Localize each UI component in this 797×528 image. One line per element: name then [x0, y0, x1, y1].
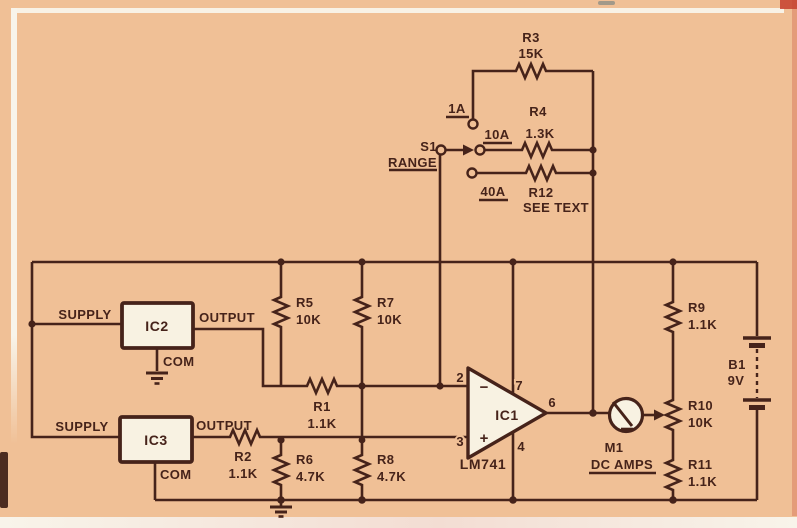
resistor-r4	[518, 143, 556, 157]
junction-dot	[669, 258, 676, 265]
junction-dot	[28, 320, 35, 327]
meter-wiper-arrow	[654, 410, 665, 421]
r7-ref: R7	[377, 295, 394, 310]
r8-ref: R8	[377, 452, 394, 467]
r2-ref: R2	[234, 449, 251, 464]
r6-value: 4.7K	[296, 469, 325, 484]
opamp-pin7-label: 7	[515, 378, 522, 393]
junction-dot	[358, 382, 365, 389]
junction-dot	[669, 496, 677, 504]
r8-value: 4.7K	[377, 469, 406, 484]
ic3-output-label: OUTPUT	[196, 418, 252, 433]
r11-value: 1.1K	[688, 474, 717, 489]
switch-wiper-arrow	[463, 145, 474, 156]
wire-left-rail	[32, 262, 120, 437]
ground-bottom	[270, 500, 292, 517]
switch-pos-1a-label: 1A	[448, 101, 466, 116]
wire-ic2-output	[193, 329, 303, 386]
resistor-r10-pot	[666, 396, 680, 434]
opamp-ref: IC1	[495, 407, 519, 423]
meter-m1: M1 DC AMPS	[589, 399, 665, 474]
resistor-r12	[522, 166, 560, 180]
junction-dot	[277, 436, 284, 443]
resistor-r1	[303, 379, 341, 393]
ic2-ref: IC2	[145, 318, 169, 334]
r6-ref: R6	[296, 452, 313, 467]
switch-ref-label: S1	[420, 139, 437, 154]
resistor-r3	[512, 64, 550, 78]
junction-dot	[358, 258, 365, 265]
junction-dot	[436, 382, 443, 389]
switch-pos-10a-label: 10A	[484, 127, 509, 142]
r1-ref: R1	[313, 399, 330, 414]
resistor-r6	[274, 451, 288, 489]
ic3-supply-label: SUPPLY	[55, 419, 108, 434]
junction-dot	[277, 258, 284, 265]
junction-dot	[358, 496, 366, 504]
circuit-schematic: S1 RANGE 1A 10A 40A R3 15K R4 1.3K R12 S…	[0, 0, 797, 528]
resistor-r8	[355, 451, 369, 489]
opamp-pin6-label: 6	[548, 395, 555, 410]
junction-dot	[589, 146, 596, 153]
resistor-r7	[355, 293, 369, 331]
r3-ref: R3	[522, 30, 539, 45]
junction-dot	[359, 437, 366, 444]
ic2-supply-label: SUPPLY	[58, 307, 111, 322]
opamp-pin4-label: 4	[517, 439, 525, 454]
r2-value: 1.1K	[228, 466, 257, 481]
schematic-page: S1 RANGE 1A 10A 40A R3 15K R4 1.3K R12 S…	[0, 0, 797, 528]
resistor-r5	[274, 293, 288, 331]
ic2-com-label: COM	[163, 354, 195, 369]
switch-pole	[437, 146, 446, 155]
r12-value: SEE TEXT	[523, 200, 589, 215]
junction-dot	[589, 169, 596, 176]
opamp-pin3-label: 3	[456, 434, 463, 449]
ic2-output-label: OUTPUT	[199, 310, 255, 325]
resistor-r11	[666, 456, 680, 494]
r3-value: 15K	[518, 46, 543, 61]
junction-dot	[589, 409, 597, 417]
battery-b1: B1 9V	[728, 338, 771, 408]
ground-ic2	[146, 373, 168, 384]
resistor-r9	[666, 298, 680, 336]
switch-contact-40a	[468, 169, 477, 178]
switch-contact-1a	[469, 120, 478, 129]
switch-pos-40a-label: 40A	[480, 184, 505, 199]
regulator-ic3: IC3 SUPPLY OUTPUT COM	[55, 417, 252, 482]
r10-ref: R10	[688, 398, 713, 413]
r5-ref: R5	[296, 295, 313, 310]
battery-ref: B1	[728, 357, 745, 372]
r5-value: 10K	[296, 312, 321, 327]
opamp-inverting-sign: −	[480, 379, 489, 396]
meter-ref: M1	[605, 440, 624, 455]
r10-value: 10K	[688, 415, 713, 430]
r12-ref: R12	[528, 185, 553, 200]
r9-ref: R9	[688, 300, 705, 315]
battery-value: 9V	[728, 373, 745, 388]
r4-ref: R4	[529, 104, 547, 119]
opamp-noninverting-sign: +	[480, 430, 489, 447]
opamp-ic1: − + IC1 LM741 2 3 7 4 6	[456, 368, 555, 472]
switch-name-label: RANGE	[388, 155, 437, 170]
resistors	[226, 64, 680, 494]
r11-ref: R11	[688, 457, 712, 472]
r4-value: 1.3K	[525, 126, 554, 141]
opamp-part-label: LM741	[460, 456, 507, 472]
meter-label: DC AMPS	[591, 457, 653, 472]
r7-value: 10K	[377, 312, 402, 327]
junction-dot	[509, 496, 517, 504]
switch-contact-10a	[476, 146, 485, 155]
ic3-com-label: COM	[160, 467, 192, 482]
r1-value: 1.1K	[307, 416, 336, 431]
junction-dot	[509, 258, 516, 265]
opamp-pin2-label: 2	[456, 370, 463, 385]
r9-value: 1.1K	[688, 317, 717, 332]
ic3-ref: IC3	[144, 432, 168, 448]
